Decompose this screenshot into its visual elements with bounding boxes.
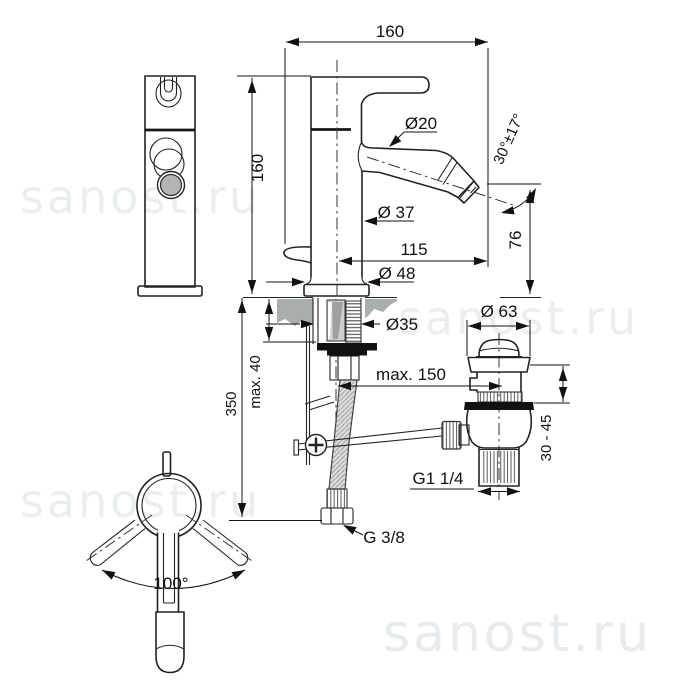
watermark-text: sanost.ru [398, 291, 639, 345]
spout-outlet-face [161, 175, 182, 196]
dim-aerator-diameter: Ø20 [386, 114, 437, 150]
spout-reach-label: 115 [400, 240, 427, 259]
waste-height-range-label: 30 - 45 [538, 415, 555, 462]
rod-reach-label: max. 150 [376, 365, 446, 384]
aerator-diameter-label: Ø20 [405, 114, 437, 133]
popup-knob [284, 247, 311, 263]
base-diameter-label: Ø 48 [379, 264, 416, 283]
body-height-label: 160 [248, 154, 267, 182]
waste-thread-label: G1 1/4 [412, 469, 463, 488]
hose-length-label: 350 [223, 391, 240, 416]
dim-base-diameter: Ø 48 [266, 264, 415, 286]
waste-flange-diameter-label: Ø 63 [481, 302, 518, 321]
watermark-text: sanost.ru [20, 170, 261, 224]
dim-waste-height-range: 30 - 45 [530, 365, 570, 461]
spout-height-label: 76 [506, 231, 525, 250]
faucet-axis [336, 60, 337, 420]
dim-total-width: 160 [285, 22, 488, 267]
spout-angle-label: 30°±17° [490, 111, 527, 167]
dim-supply-thread: G 3/8 [341, 521, 405, 547]
linkage-knurled-coupling [442, 422, 461, 450]
handle-swivel-angle-label: 100° [153, 574, 188, 593]
popup-waste-assembly [459, 333, 534, 500]
dim-body-diameter: Ø 37 [364, 203, 414, 225]
waste-gasket [464, 402, 534, 410]
supply-thread-label: G 3/8 [363, 528, 405, 547]
body-diameter-label: Ø 37 [378, 203, 415, 222]
technical-drawing-page: sanost.ru sanost.ru sanost.ru sanost.ru [0, 0, 700, 700]
dimension-annotations: 160 160 Ø20 30°±17° 76 [223, 22, 570, 547]
watermark-text: sanost.ru [383, 604, 652, 664]
spout-axis [367, 157, 516, 206]
total-width-label: 160 [376, 22, 404, 41]
drawing-canvas: sanost.ru sanost.ru sanost.ru sanost.ru [0, 0, 700, 700]
supply-hose [321, 380, 357, 524]
deck-thickness-label: max. 40 [247, 355, 264, 408]
supply-connector-nut [321, 508, 353, 524]
shank-diameter-label: Ø35 [386, 315, 418, 334]
